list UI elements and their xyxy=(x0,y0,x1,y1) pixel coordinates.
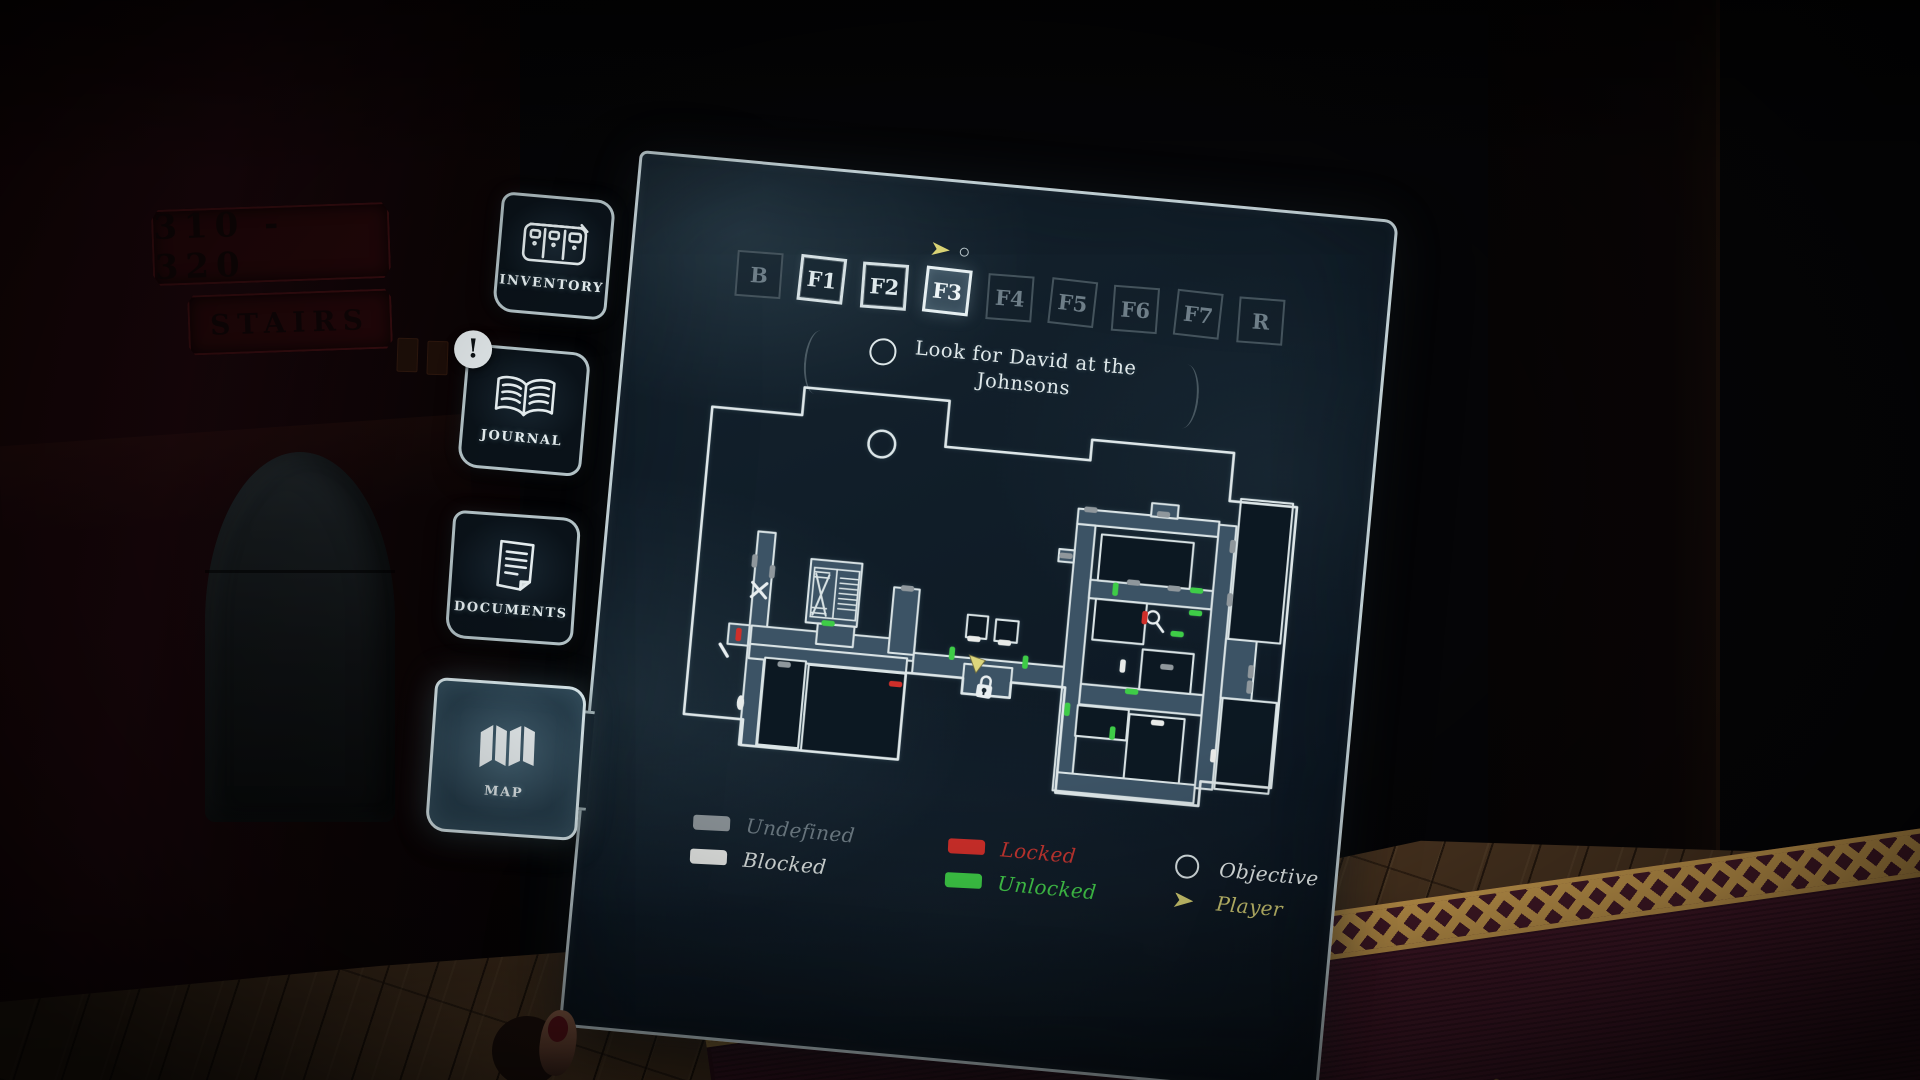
floor-tab-b[interactable]: B xyxy=(734,250,783,299)
journal-book-icon xyxy=(490,372,560,424)
legend-swatch xyxy=(947,838,985,855)
legend-group-doors-1: Undefined Blocked xyxy=(689,809,857,882)
floor-tab-f1[interactable]: F1 xyxy=(796,254,847,305)
legend-label: Blocked xyxy=(742,848,828,880)
floor-tab-f2[interactable]: F2 xyxy=(860,262,909,311)
legend-swatch xyxy=(944,872,982,889)
legend-label: Locked xyxy=(1000,837,1078,868)
floor-tab-label: F7 xyxy=(1182,300,1214,328)
sidebar-item-documents[interactable]: DOCUMENTS xyxy=(445,510,582,647)
floor-tab-f6[interactable]: F6 xyxy=(1111,285,1160,334)
legend-row: Locked xyxy=(947,832,1103,870)
sidebar-item-label: JOURNAL xyxy=(480,427,563,449)
objective-map-ring xyxy=(867,430,896,459)
door-marker-unlocked xyxy=(1189,610,1203,617)
sidebar-item-label: INVENTORY xyxy=(499,272,605,296)
legend-row: Undefined xyxy=(692,809,857,848)
floor-tab-f4[interactable]: F4 xyxy=(985,273,1034,322)
legend-label: Undefined xyxy=(745,814,856,848)
legend-group-markers: Objective Player xyxy=(1167,853,1319,924)
room-number-sign: 310 - 320 xyxy=(151,202,392,286)
floor-plan xyxy=(648,372,1338,831)
sidebar-item-label: DOCUMENTS xyxy=(453,598,568,621)
floor-tab-f3[interactable]: F3 xyxy=(922,266,973,317)
debris-mark xyxy=(719,644,728,656)
right-door xyxy=(1488,0,1720,890)
light-switch xyxy=(426,341,448,376)
stairs-sign: STAIRS xyxy=(187,288,393,355)
floor-tab-label: F3 xyxy=(931,277,963,305)
player-legend-icon xyxy=(1174,892,1194,909)
objective-legend-icon xyxy=(1174,854,1200,880)
player-floor-indicator xyxy=(931,242,969,259)
legend-group-doors-2: Locked Unlocked xyxy=(944,832,1103,904)
sidebar-item-map[interactable]: MAP xyxy=(425,677,587,841)
floor-tab-label: R xyxy=(1251,308,1270,334)
sidebar-item-label: MAP xyxy=(484,783,524,801)
map-panel: B F1 F2 F3 F4 F5 F6 F7 R Look for David … xyxy=(559,150,1399,1080)
floor-tab-f7[interactable]: F7 xyxy=(1173,289,1224,340)
floor-tab-label: F4 xyxy=(994,284,1025,311)
legend-label: Unlocked xyxy=(996,871,1097,904)
legend-label: Objective xyxy=(1218,858,1319,891)
suitcase-icon xyxy=(520,218,590,270)
sidebar-item-inventory[interactable]: INVENTORY xyxy=(492,191,616,320)
floor-tab-r[interactable]: R xyxy=(1236,296,1285,345)
legend-row: Player xyxy=(1167,887,1316,925)
player-hand xyxy=(492,1002,662,1080)
objective-ring-icon xyxy=(869,337,898,366)
door-marker-unlocked xyxy=(1170,631,1184,638)
floor-tab-label: F1 xyxy=(806,265,838,293)
plan-corridors xyxy=(717,465,1269,808)
document-icon xyxy=(486,537,542,594)
magnifier-icon xyxy=(1146,611,1165,632)
legend-row: Objective xyxy=(1170,853,1319,891)
map-icon xyxy=(472,716,542,776)
floor-tab-label: F6 xyxy=(1120,296,1151,323)
objective-circle-icon xyxy=(959,247,969,257)
door-marker-blocked xyxy=(1119,659,1126,673)
light-switch xyxy=(396,338,418,373)
legend-row: Unlocked xyxy=(944,866,1100,904)
floor-tab-label: B xyxy=(749,261,769,287)
floor-tab-f5[interactable]: F5 xyxy=(1047,277,1098,328)
floor-tab-label: F2 xyxy=(869,273,900,300)
legend-swatch xyxy=(690,848,728,865)
floor-tab-label: F5 xyxy=(1057,289,1089,317)
trash-can-lid xyxy=(205,570,395,573)
legend-swatch xyxy=(693,814,731,831)
legend-row: Blocked xyxy=(689,843,854,882)
legend-label: Player xyxy=(1215,892,1284,922)
player-arrow-icon xyxy=(931,242,950,257)
game-screen: 310 - 320 STAIRS INVENTORY ! xyxy=(0,0,1920,1080)
trash-can xyxy=(205,452,395,822)
notification-badge: ! xyxy=(454,330,493,369)
sidebar-item-journal[interactable]: ! JOURNAL xyxy=(457,343,591,477)
